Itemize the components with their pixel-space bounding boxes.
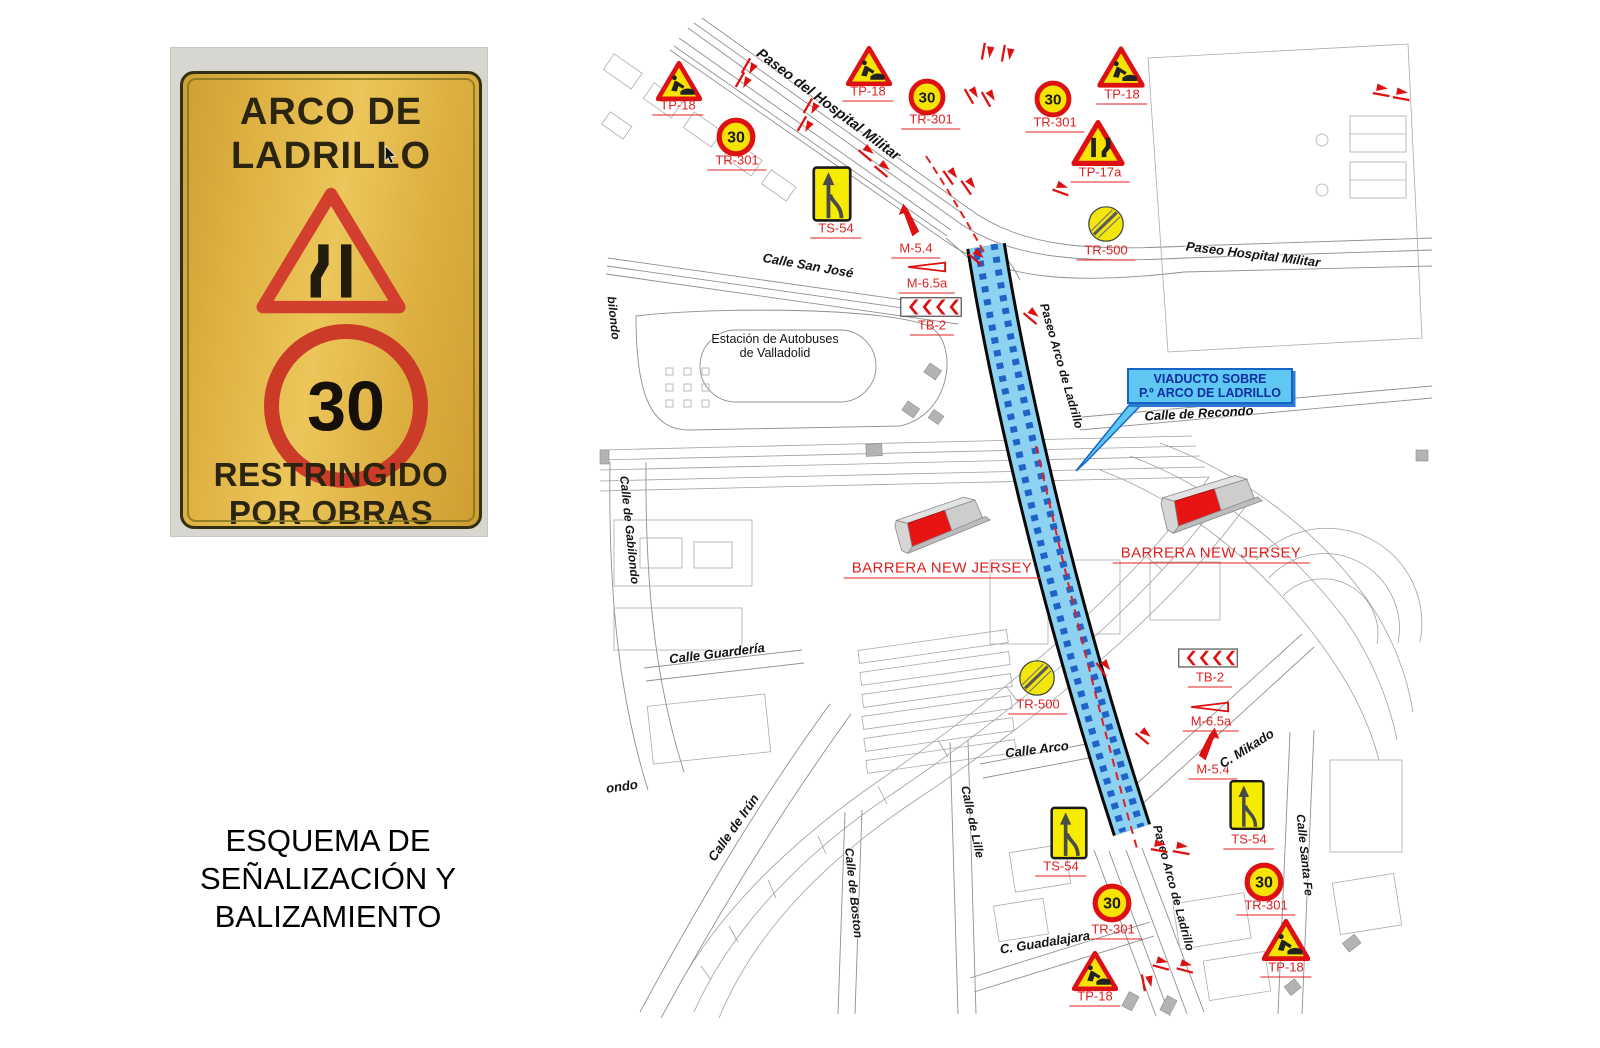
sign-label: M-5.4 [891,242,940,259]
sign-tb2 [900,297,962,318]
chevron-panel-icon [900,297,962,318]
sign-label: TS-54 [1223,833,1274,850]
sign-position-marker-icon [979,85,1001,109]
sign-tp18 [656,60,702,102]
sign-label: TR-500 [1076,244,1135,261]
speed-value: 30 [919,89,936,106]
map-panel: TP-18 30TR-301 TP-18 30TR-301 30TR-301 T… [0,0,1600,1048]
sign-position-flag-icon [999,43,1017,64]
chevron-panel-icon [1178,648,1238,668]
sign-label: TR-301 [707,154,766,171]
street-label: Calle San José [762,251,855,281]
sign-label: TP-17a [1071,166,1130,183]
sign-tp17a [1072,119,1125,167]
street-label: Calle de Gabilondo [617,475,642,584]
sign-tp18 [1098,46,1145,89]
road-narrows-right-triangle-icon [1072,119,1125,167]
sign-tr301: 30 [908,78,946,116]
viaduct-callout: VIADUCTO SOBRE P.º ARCO DE LADRILLO [1127,368,1293,404]
end-of-restrictions-icon [1086,204,1126,244]
sign-ts54 [1229,778,1265,832]
sign-label: TP-18 [652,99,703,116]
street-label: Calle Santa Fe [1293,814,1315,897]
sign-position-flag-icon [1139,971,1157,992]
sign-position-flag-icon [979,41,997,62]
street-label: Calle de Recondo [1144,404,1254,424]
end-of-restrictions-icon [1017,658,1057,698]
sign-tr301: 30 [716,117,756,157]
lane-merge-panel-icon [1050,804,1088,862]
new-jersey-barrier-icon [1151,456,1270,544]
sign-label: TR-301 [1083,923,1142,940]
sign-ts54 [812,164,852,224]
sign-label: TR-301 [1236,899,1295,916]
street-label: Calle Arco [1004,739,1069,761]
speed-limit-30-icon: 30 [1034,80,1072,118]
street-label: Calle de Irún [706,792,763,864]
roadworks-triangle-icon [1072,950,1118,992]
street-label: Calle de Lille [958,785,986,860]
new-jersey-barrier [884,477,997,564]
sign-position-marker-icon [1093,655,1116,679]
sign-position-flag-icon [1175,956,1197,975]
lane-taper-marking-icon [1190,700,1230,715]
road-marking-arrow-icon [898,203,920,237]
sign-tr301: 30 [1034,80,1072,118]
barrier-label: BARRERA NEW JERSEY [1113,547,1310,564]
new-jersey-barrier-icon [884,477,997,564]
sign-position-flag-icon [1391,85,1412,103]
document-page: ARCO DE LADRILLO 30 RESTRINGIDO POR OBRA… [0,0,1600,1048]
sign-label: TB-2 [910,319,954,336]
sign-position-flag-icon [1149,837,1170,855]
sign-label: TP-18 [1260,961,1311,978]
sign-position-flag-icon [979,85,1001,109]
sign-tp18 [1262,918,1310,962]
sign-position-marker-icon [966,244,990,268]
sign-label: TB-2 [1188,671,1232,688]
roadworks-triangle-icon [1262,918,1310,962]
sign-label: TR-500 [1008,698,1067,715]
sign-position-flag-icon [1371,81,1392,99]
speed-limit-30-icon: 30 [1092,883,1132,923]
sign-label: TR-301 [901,113,960,130]
speed-limit-30-icon: 30 [908,78,946,116]
sign-label: M-6.5a [899,277,955,294]
sign-label: TP-18 [1069,990,1120,1007]
lane-merge-panel-icon [1229,778,1265,832]
sign-position-flag-icon [1171,839,1192,857]
sign-tp18 [1072,950,1118,992]
map-annotations: TP-18 30TR-301 TP-18 30TR-301 30TR-301 T… [0,0,1600,1048]
sign-m65a [1190,700,1230,715]
sign-label: TP-18 [842,85,893,102]
sign-label: TS-54 [810,222,861,239]
street-label: Estación de Autobuses de Valladolid [711,332,838,360]
street-label: bilondo [604,296,622,340]
callout-line2: P.º ARCO DE LADRILLO [1130,386,1290,400]
street-label: Calle Guardería [668,641,765,667]
speed-limit-30-icon: 30 [716,117,756,157]
sign-m65a [907,260,947,275]
barrier-label: BARRERA NEW JERSEY [844,562,1041,579]
roadworks-triangle-icon [656,60,702,102]
sign-position-flag-icon [1093,655,1116,679]
lane-merge-panel-icon [812,164,852,224]
sign-m54 [1197,727,1221,761]
street-label: ondo [605,778,638,797]
street-label: C. Mikado [1217,727,1277,772]
sign-position-flag-icon [1151,953,1173,972]
sign-position-marker-icon [1151,953,1173,972]
street-label: Paseo Arco de Ladrillo [1037,302,1086,430]
sign-position-marker-icon [1149,837,1170,855]
lane-taper-marking-icon [907,260,947,275]
sign-tp18 [846,45,892,87]
speed-value: 30 [1103,896,1121,913]
sign-position-flag-icon [1133,723,1157,747]
sign-position-flag-icon [966,244,990,268]
sign-position-marker-icon [999,43,1017,64]
sign-tr500 [1017,658,1057,698]
sign-position-marker-icon [1139,971,1157,992]
speed-limit-30-icon: 30 [1244,862,1284,902]
sign-ts54 [1050,804,1088,862]
sign-position-marker-icon [1371,81,1392,99]
sign-position-marker-icon [1133,723,1157,747]
callout-line1: VIADUCTO SOBRE [1130,372,1290,386]
sign-position-marker-icon [979,41,997,62]
sign-label: TS-54 [1035,860,1086,877]
street-label: Paseo Hospital Militar [1185,240,1321,271]
sign-label: TP-18 [1096,88,1147,105]
new-jersey-barrier [1151,456,1270,544]
sign-position-marker-icon [1175,956,1197,975]
sign-tr500 [1086,204,1126,244]
speed-value: 30 [727,130,745,147]
speed-value: 30 [1045,91,1062,108]
speed-value: 30 [1255,875,1273,892]
sign-tb2 [1178,648,1238,668]
roadworks-triangle-icon [846,45,892,87]
road-marking-arrow-icon [1197,727,1221,761]
sign-tr301: 30 [1092,883,1132,923]
sign-m54 [898,203,920,237]
sign-position-marker-icon [1171,839,1192,857]
sign-tr301: 30 [1244,862,1284,902]
street-label: Calle de Boston [842,847,865,939]
roadworks-triangle-icon [1098,46,1145,89]
sign-position-marker-icon [1391,85,1412,103]
